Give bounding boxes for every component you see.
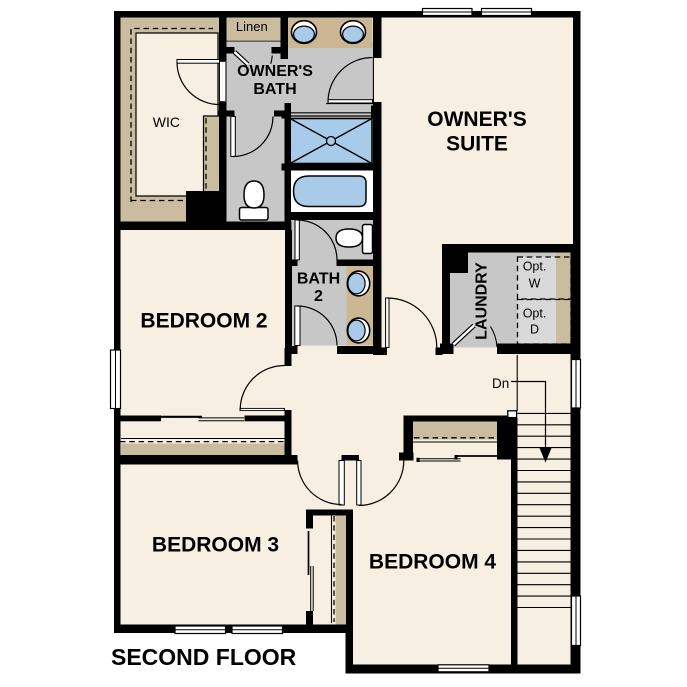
- svg-text:BEDROOM 3: BEDROOM 3: [152, 533, 279, 556]
- svg-text:Opt.: Opt.: [523, 306, 547, 320]
- svg-text:Opt.: Opt.: [523, 260, 547, 274]
- svg-text:OWNER'S: OWNER'S: [237, 63, 313, 80]
- svg-text:BEDROOM 2: BEDROOM 2: [140, 309, 267, 332]
- svg-text:BATH: BATH: [253, 81, 296, 98]
- svg-text:SECOND FLOOR: SECOND FLOOR: [111, 644, 297, 670]
- svg-text:BATH: BATH: [297, 271, 340, 288]
- svg-text:Linen: Linen: [236, 19, 268, 34]
- svg-text:OWNER'S: OWNER'S: [427, 108, 527, 131]
- svg-text:LAUNDRY: LAUNDRY: [474, 262, 491, 340]
- svg-text:BEDROOM 4: BEDROOM 4: [369, 550, 497, 573]
- svg-text:WIC: WIC: [153, 114, 180, 130]
- svg-text:2: 2: [314, 288, 323, 305]
- svg-text:Dn: Dn: [492, 376, 509, 391]
- svg-text:D: D: [530, 323, 539, 337]
- svg-text:SUITE: SUITE: [446, 133, 508, 156]
- svg-text:W: W: [529, 277, 541, 291]
